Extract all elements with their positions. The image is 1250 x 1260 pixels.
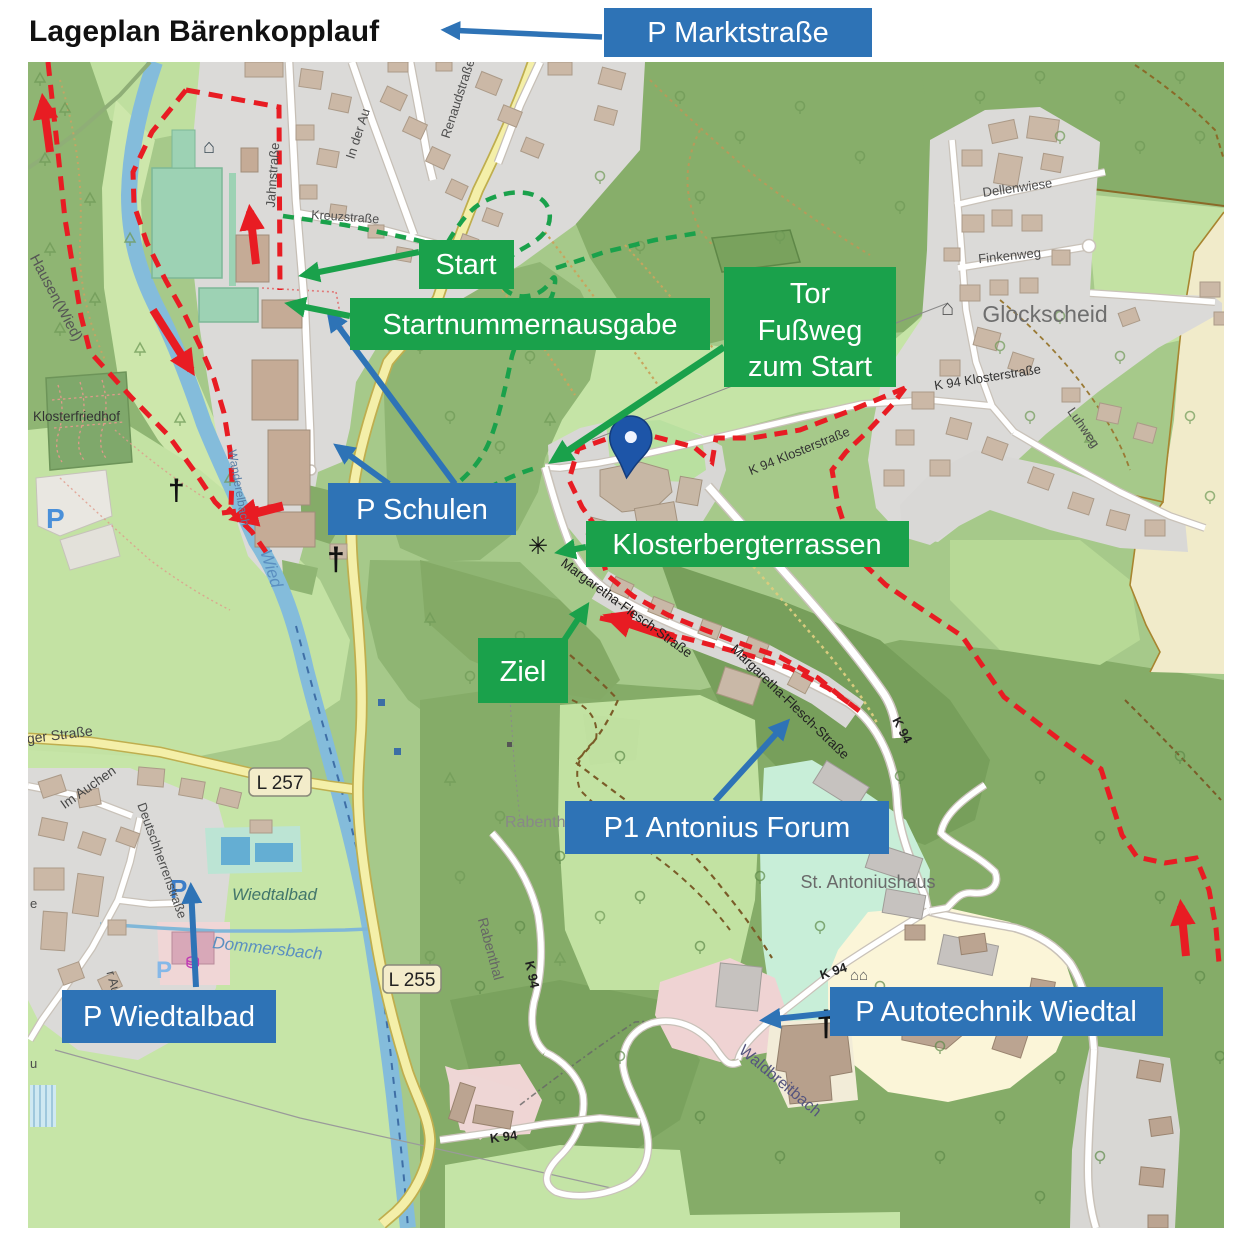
svg-text:P Marktstraße: P Marktstraße (647, 17, 829, 49)
svg-text:P1 Antonius Forum: P1 Antonius Forum (604, 812, 851, 844)
svg-text:zum Start: zum Start (748, 351, 872, 383)
svg-text:⌂⌂: ⌂⌂ (850, 967, 868, 984)
svg-text:P Schulen: P Schulen (356, 494, 488, 526)
svg-text:Lageplan Bärenkopplauf: Lageplan Bärenkopplauf (29, 15, 380, 48)
svg-text:†: † (168, 474, 185, 507)
svg-text:St. Antoniushaus: St. Antoniushaus (800, 872, 935, 892)
svg-text:⌂: ⌂ (203, 136, 215, 158)
svg-text:Ziel: Ziel (500, 656, 547, 688)
svg-text:†: † (327, 541, 345, 577)
svg-text:⌂: ⌂ (941, 295, 954, 320)
svg-text:Rabentha: Rabentha (505, 814, 574, 831)
svg-text:Wiedtalbad: Wiedtalbad (232, 885, 317, 904)
svg-text:P Autotechnik Wiedtal: P Autotechnik Wiedtal (855, 996, 1137, 1028)
svg-text:Start: Start (435, 249, 496, 281)
svg-text:Klosterfriedhof: Klosterfriedhof (33, 409, 120, 424)
svg-text:Klosterbergterrassen: Klosterbergterrassen (612, 529, 881, 561)
svg-text:P: P (156, 957, 172, 984)
svg-text:Startnummernausgabe: Startnummernausgabe (383, 309, 678, 341)
svg-text:✳: ✳ (528, 533, 548, 560)
svg-text:u: u (30, 1056, 37, 1071)
svg-text:L 257: L 257 (257, 773, 304, 794)
svg-text:Tor: Tor (790, 278, 831, 310)
svg-text:Fußweg: Fußweg (758, 315, 863, 347)
svg-text:e: e (30, 896, 37, 911)
svg-text:Glockscheid: Glockscheid (982, 301, 1107, 327)
svg-text:P Wiedtalbad: P Wiedtalbad (83, 1001, 255, 1033)
svg-text:L 255: L 255 (389, 970, 436, 991)
svg-text:P: P (46, 503, 65, 534)
